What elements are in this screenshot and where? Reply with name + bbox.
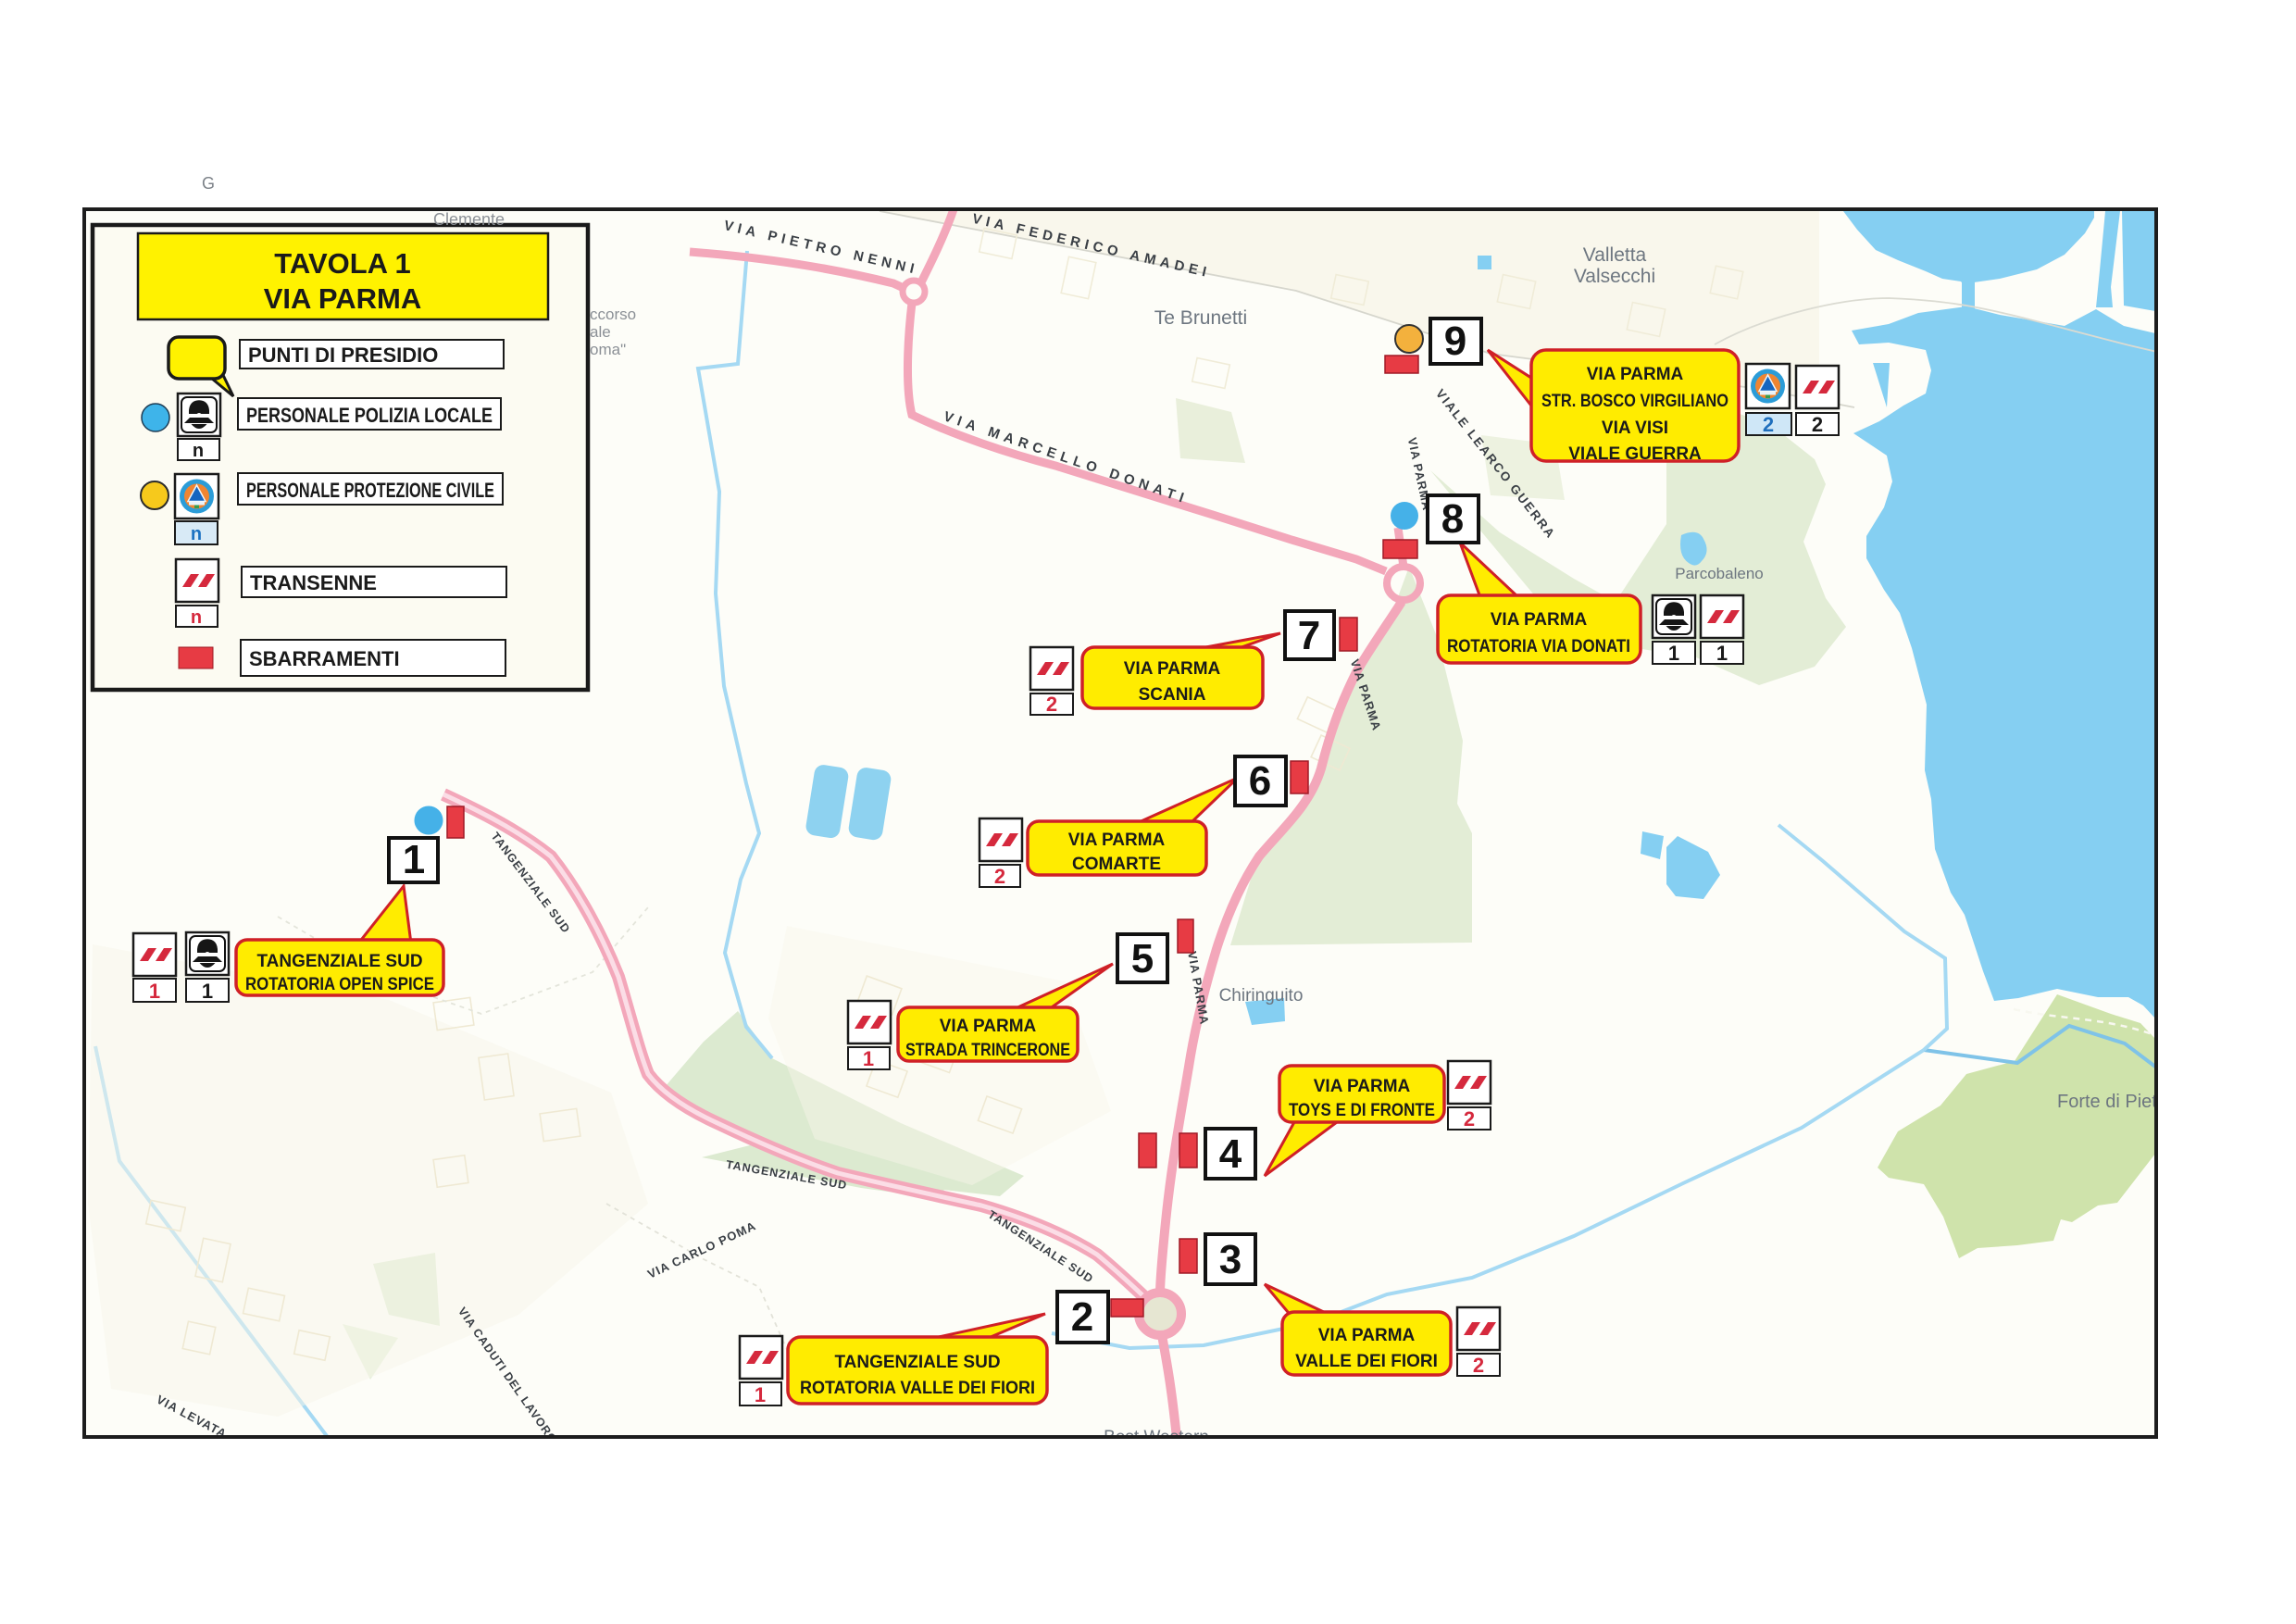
svg-text:VIA PARMA: VIA PARMA bbox=[264, 282, 422, 315]
svg-text:TRANSENNE: TRANSENNE bbox=[250, 571, 377, 594]
svg-text:VIA PARMA: VIA PARMA bbox=[1068, 831, 1166, 850]
svg-text:TAVOLA 1: TAVOLA 1 bbox=[274, 247, 411, 280]
svg-text:COMARTE: COMARTE bbox=[1072, 855, 1161, 874]
svg-text:1: 1 bbox=[755, 1383, 766, 1406]
svg-text:2: 2 bbox=[1473, 1354, 1484, 1377]
svg-text:Te Brunetti: Te Brunetti bbox=[1154, 307, 1247, 329]
svg-text:STR. BOSCO VIRGILIANO: STR. BOSCO VIRGILIANO bbox=[1541, 392, 1728, 411]
svg-text:7: 7 bbox=[1298, 613, 1320, 658]
svg-text:1: 1 bbox=[1716, 642, 1728, 665]
svg-text:VIA PARMA: VIA PARMA bbox=[1491, 610, 1588, 630]
svg-text:n: n bbox=[191, 524, 202, 544]
svg-text:PERSONALE POLIZIA LOCALE: PERSONALE POLIZIA LOCALE bbox=[246, 404, 493, 427]
svg-text:VIA PARMA: VIA PARMA bbox=[1314, 1077, 1411, 1096]
svg-text:2: 2 bbox=[1812, 413, 1823, 436]
svg-text:PERSONALE PROTEZIONE CIVILE: PERSONALE PROTEZIONE CIVILE bbox=[246, 479, 494, 502]
svg-text:8: 8 bbox=[1441, 496, 1464, 542]
svg-text:VALLE DEI FIORI: VALLE DEI FIORI bbox=[1295, 1352, 1438, 1371]
svg-text:VIA VISI: VIA VISI bbox=[1602, 418, 1668, 438]
svg-text:Parcobaleno: Parcobaleno bbox=[1675, 565, 1763, 582]
svg-text:1: 1 bbox=[1668, 642, 1679, 665]
svg-text:VIA PARMA: VIA PARMA bbox=[1587, 365, 1684, 384]
svg-text:1: 1 bbox=[149, 980, 160, 1003]
svg-text:1: 1 bbox=[403, 837, 425, 882]
svg-text:2: 2 bbox=[1464, 1107, 1475, 1131]
svg-text:SCANIA: SCANIA bbox=[1139, 685, 1206, 705]
svg-text:2: 2 bbox=[1046, 693, 1057, 716]
svg-text:ccorso: ccorso bbox=[590, 306, 636, 323]
svg-text:1: 1 bbox=[202, 980, 213, 1003]
svg-text:Valsecchi: Valsecchi bbox=[1574, 266, 1655, 287]
svg-text:VIALE GUERRA: VIALE GUERRA bbox=[1568, 444, 1702, 464]
svg-text:VIA PARMA: VIA PARMA bbox=[1124, 659, 1221, 679]
svg-text:6: 6 bbox=[1249, 758, 1271, 804]
svg-text:Valletta: Valletta bbox=[1583, 244, 1647, 266]
svg-text:ale: ale bbox=[590, 323, 611, 341]
svg-text:Chiringuito: Chiringuito bbox=[1219, 986, 1304, 1006]
svg-text:n: n bbox=[193, 441, 204, 461]
svg-text:SBARRAMENTI: SBARRAMENTI bbox=[249, 647, 400, 670]
svg-text:Forte di Pieto: Forte di Pieto bbox=[2057, 1092, 2167, 1112]
svg-text:2: 2 bbox=[1763, 413, 1774, 436]
svg-text:3: 3 bbox=[1219, 1237, 1242, 1282]
svg-text:n: n bbox=[191, 607, 202, 628]
svg-text:G: G bbox=[202, 174, 215, 193]
svg-text:4: 4 bbox=[1219, 1131, 1242, 1177]
svg-text:ROTATORIA VALLE DEI FIORI: ROTATORIA VALLE DEI FIORI bbox=[800, 1379, 1035, 1398]
svg-text:TANGENZIALE SUD: TANGENZIALE SUD bbox=[834, 1353, 1000, 1372]
svg-text:STRADA TRINCERONE: STRADA TRINCERONE bbox=[905, 1041, 1070, 1060]
svg-text:ROTATORIA VIA DONATI: ROTATORIA VIA DONATI bbox=[1447, 637, 1630, 656]
svg-text:VIA PARMA: VIA PARMA bbox=[1318, 1326, 1416, 1345]
svg-text:9: 9 bbox=[1444, 319, 1466, 364]
svg-text:ROTATORIA OPEN SPICE: ROTATORIA OPEN SPICE bbox=[245, 975, 434, 994]
svg-text:oma": oma" bbox=[590, 341, 626, 358]
svg-text:2: 2 bbox=[994, 865, 1005, 888]
svg-text:PUNTI DI PRESIDIO: PUNTI DI PRESIDIO bbox=[248, 344, 438, 367]
svg-text:2: 2 bbox=[1071, 1294, 1093, 1340]
svg-text:5: 5 bbox=[1131, 936, 1154, 981]
svg-text:Clemente: Clemente bbox=[433, 210, 505, 229]
svg-text:VIA PARMA: VIA PARMA bbox=[940, 1017, 1037, 1036]
svg-text:TANGENZIALE SUD: TANGENZIALE SUD bbox=[256, 952, 422, 971]
svg-text:1: 1 bbox=[863, 1047, 874, 1070]
svg-text:TOYS E DI FRONTE: TOYS E DI FRONTE bbox=[1289, 1101, 1435, 1120]
